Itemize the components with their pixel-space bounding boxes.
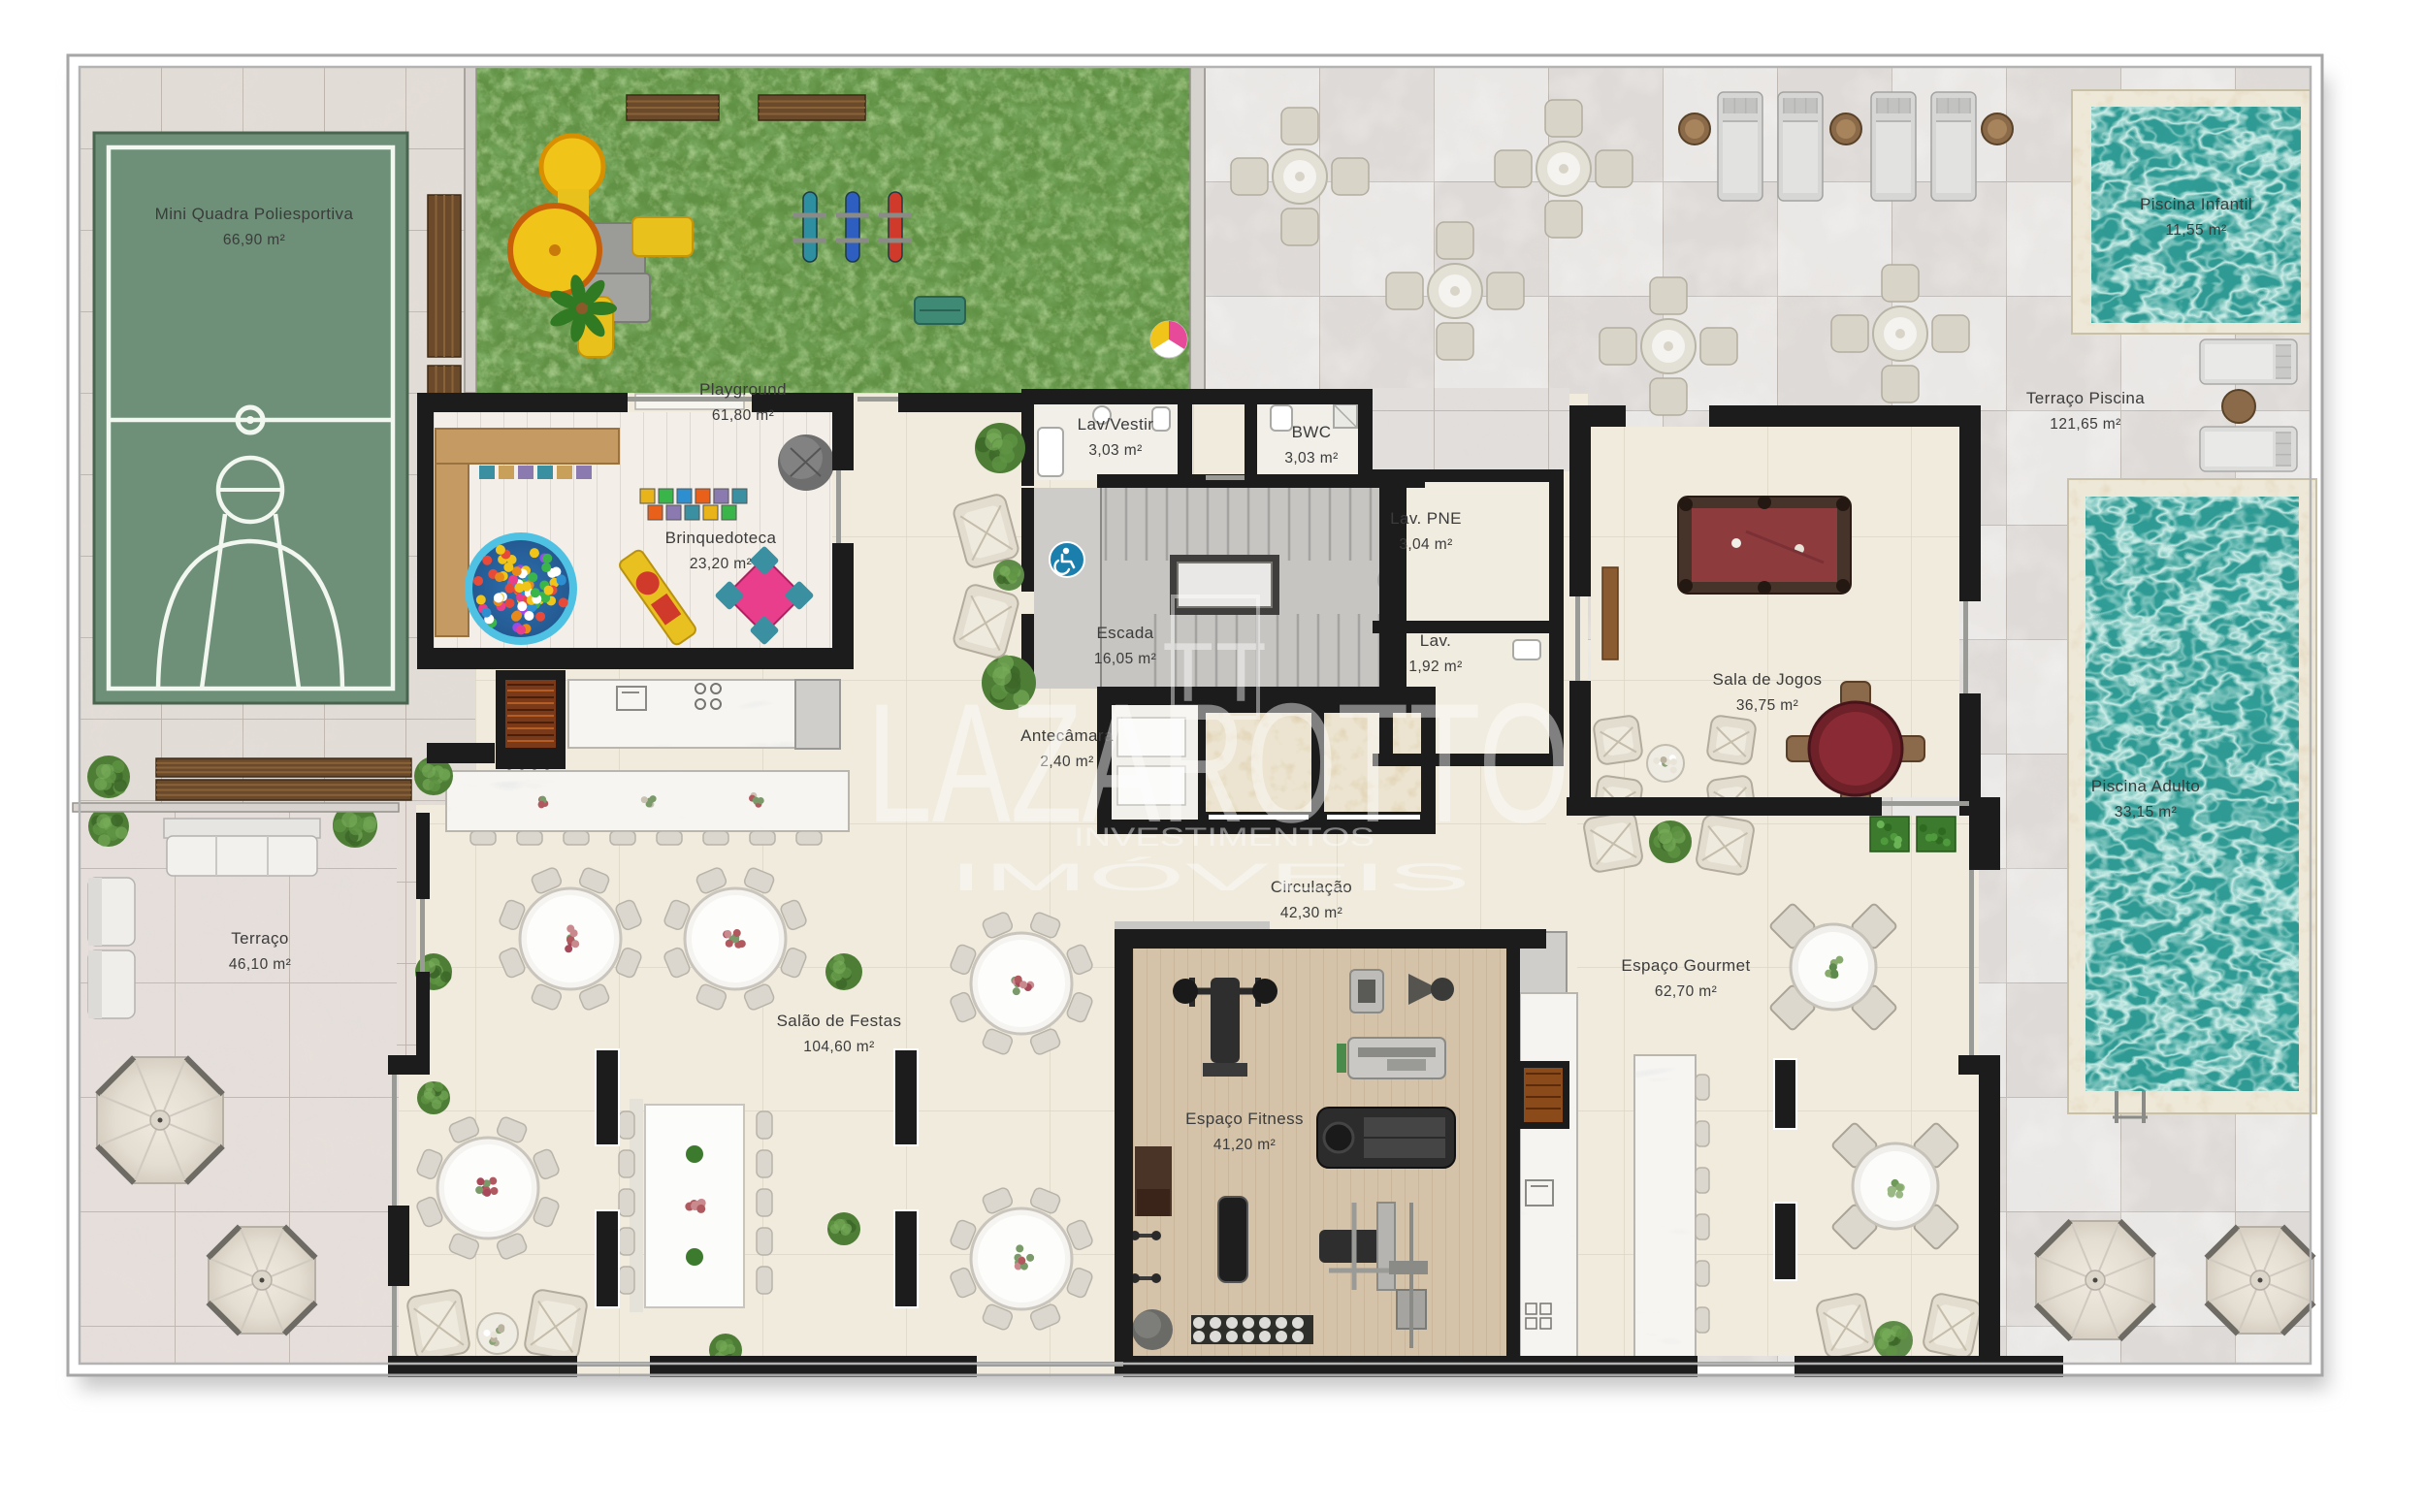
svg-text:Espaço Gourmet: Espaço Gourmet: [1621, 956, 1750, 975]
svg-text:Terraço Piscina: Terraço Piscina: [2026, 389, 2145, 407]
svg-text:Terraço: Terraço: [231, 929, 289, 948]
svg-text:INVESTIMENTOS: INVESTIMENTOS: [1074, 822, 1374, 852]
svg-text:33,15 m²: 33,15 m²: [2115, 804, 2177, 820]
svg-text:16,05 m²: 16,05 m²: [1094, 651, 1156, 667]
svg-text:46,10 m²: 46,10 m²: [229, 956, 291, 973]
svg-text:3,04 m²: 3,04 m²: [1399, 536, 1452, 553]
svg-text:Escada: Escada: [1096, 624, 1153, 642]
svg-text:3,03 m²: 3,03 m²: [1088, 442, 1142, 459]
svg-text:121,65 m²: 121,65 m²: [2050, 416, 2120, 433]
svg-text:11,55 m²: 11,55 m²: [2165, 222, 2226, 239]
svg-text:61,80 m²: 61,80 m²: [712, 407, 774, 424]
svg-text:Playground: Playground: [699, 380, 787, 399]
svg-text:BWC: BWC: [1292, 423, 1332, 441]
svg-text:104,60 m²: 104,60 m²: [803, 1039, 874, 1055]
svg-text:IMÓVEIS: IMÓVEIS: [949, 855, 1471, 899]
svg-text:23,20 m²: 23,20 m²: [690, 556, 752, 572]
svg-text:Piscina Infantil: Piscina Infantil: [2140, 195, 2252, 213]
svg-text:62,70 m²: 62,70 m²: [1655, 983, 1717, 1000]
svg-text:Piscina Adulto: Piscina Adulto: [2091, 777, 2200, 795]
svg-text:Brinquedoteca: Brinquedoteca: [665, 529, 777, 547]
svg-text:Lav/Vestir: Lav/Vestir: [1078, 415, 1154, 434]
svg-text:66,90 m²: 66,90 m²: [223, 232, 285, 248]
svg-text:Espaço Fitness: Espaço Fitness: [1185, 1110, 1304, 1128]
svg-text:3,03 m²: 3,03 m²: [1284, 450, 1338, 466]
svg-text:Lav.: Lav.: [1420, 631, 1451, 650]
svg-text:Lav. PNE: Lav. PNE: [1390, 509, 1462, 528]
svg-text:Mini Quadra Poliesportiva: Mini Quadra Poliesportiva: [155, 205, 354, 223]
svg-text:42,30 m²: 42,30 m²: [1280, 905, 1342, 921]
svg-text:36,75 m²: 36,75 m²: [1736, 697, 1798, 714]
svg-text:Sala de Jogos: Sala de Jogos: [1713, 670, 1823, 689]
svg-text:41,20 m²: 41,20 m²: [1213, 1137, 1276, 1153]
svg-text:Salão de Festas: Salão de Festas: [777, 1012, 902, 1030]
